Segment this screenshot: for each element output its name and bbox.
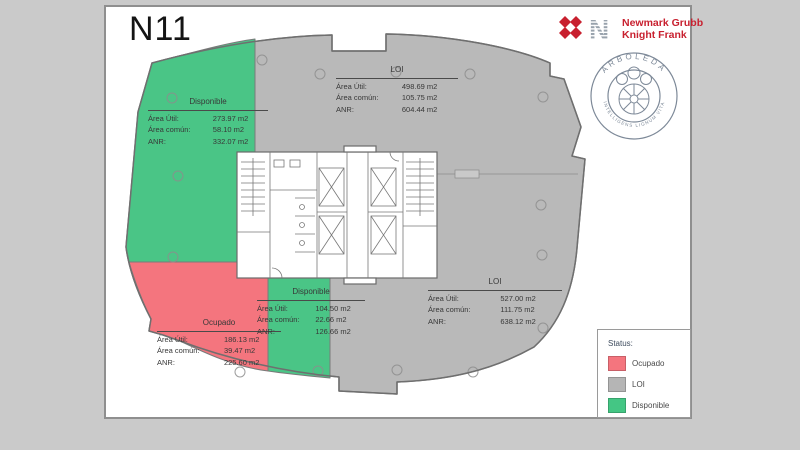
area-comun-label: Área común: [336,92,402,103]
disponible-swatch-icon [608,398,626,413]
legend-title: Status: [608,339,690,348]
anr-label: ANR: [148,136,213,147]
zone-status-label: LOI [428,276,562,291]
newmark-n-icon: N [589,16,609,42]
anr-label: ANR: [336,104,402,115]
anr-label: ANR: [157,357,224,368]
legend-label: Ocupado [632,359,664,368]
legend-item-disponible: Disponible [608,398,690,413]
area-comun-value: 22.66 m2 [315,314,365,325]
floor-title: N11 [129,10,192,49]
area-util-label: Área Útil: [148,113,213,124]
loi-swatch-icon [608,377,626,392]
building-core [237,146,437,284]
newmark-mark-icon: N [559,16,615,42]
anr-value: 332.07 m2 [213,136,268,147]
area-comun-label: Área común: [148,124,213,135]
newmark-logo: N Newmark Grubb Knight Frank [559,16,703,42]
logo-line2: Knight Frank [622,29,703,41]
info-box-disponible-topleft: Disponible Área Útil:273.97 m2 Área comú… [148,96,268,147]
zone-status-label: LOI [336,64,458,79]
area-util-value: 498.69 m2 [402,81,458,92]
zone-status-label: Disponible [257,286,365,301]
anr-value: 126.66 m2 [315,326,365,337]
area-comun-label: Área común: [257,314,315,325]
area-comun-label: Área común: [428,304,500,315]
anr-value: 604.44 m2 [402,104,458,115]
info-box-disponible-bottom: Disponible Área Útil:104.50 m2 Área comú… [257,286,365,337]
area-util-label: Área Útil: [428,293,500,304]
seal-wheel-icon [617,67,652,114]
seal-top-text: ARBOLEDA [599,52,668,75]
info-box-loi-right: LOI Área Útil:527.00 m2 Área común:111.7… [428,276,562,327]
area-util-label: Área Útil: [336,81,402,92]
area-util-label: Área Útil: [257,303,315,314]
zone-disponible-topleft-fill [126,39,255,262]
area-comun-value: 111.75 m2 [500,304,562,315]
info-box-loi-top: LOI Área Útil:498.69 m2 Área común:105.7… [336,64,458,115]
status-legend: Status: Ocupado LOI Disponible [597,329,691,418]
area-comun-value: 105.75 m2 [402,92,458,103]
svg-text:ARBOLEDA: ARBOLEDA [599,52,668,75]
anr-value: 225.60 m2 [224,357,281,368]
anr-value: 638.12 m2 [500,316,562,327]
ocupado-swatch-icon [608,356,626,371]
anr-label: ANR: [257,326,315,337]
legend-label: Disponible [632,401,669,410]
area-comun-value: 39.47 m2 [224,345,281,356]
logo-line1: Newmark Grubb [622,17,703,29]
area-util-label: Área Útil: [157,334,224,345]
area-util-value: 104.50 m2 [315,303,365,314]
arboleda-seal: ARBOLEDA INTELLIGENS LIGNUM VITA [586,46,684,144]
legend-item-ocupado: Ocupado [608,356,690,371]
legend-item-loi: LOI [608,377,690,392]
area-comun-value: 58.10 m2 [213,124,268,135]
anr-label: ANR: [428,316,500,327]
area-comun-label: Área común: [157,345,224,356]
area-util-value: 527.00 m2 [500,293,562,304]
legend-label: LOI [632,380,645,389]
zone-status-label: Disponible [148,96,268,111]
page-background: N11 Disponible Área Útil:273.97 m2 Área … [0,0,800,450]
area-util-value: 273.97 m2 [213,113,268,124]
